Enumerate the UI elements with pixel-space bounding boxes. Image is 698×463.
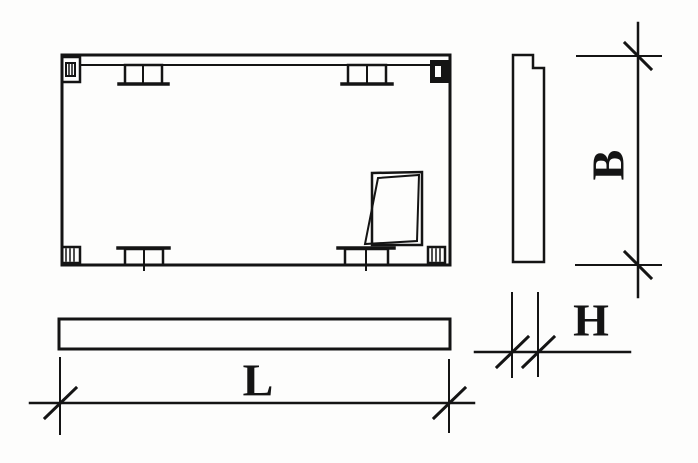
side-view <box>513 55 544 262</box>
plan-view <box>62 55 450 270</box>
dimension-label-L: L <box>243 354 274 407</box>
corner-plate-top-left <box>62 57 80 82</box>
elevation-view <box>59 319 450 349</box>
corner-plate-bottom-left <box>62 247 80 263</box>
corner-plate-top-right <box>431 61 450 82</box>
drawing-svg <box>0 0 698 463</box>
side-view-outline <box>513 55 544 262</box>
plan-opening <box>365 172 422 245</box>
lifting-anchor-bottom-right <box>338 248 394 270</box>
corner-plate-bottom-right <box>428 247 445 263</box>
lifting-anchor-top-left <box>119 65 168 84</box>
lifting-anchor-top-right <box>342 65 392 84</box>
technical-drawing-canvas: L B H <box>0 0 698 463</box>
elevation-outline <box>59 319 450 349</box>
plan-outline <box>62 55 450 265</box>
dimension-label-H: H <box>573 294 609 347</box>
lifting-anchor-bottom-left <box>118 248 169 270</box>
dimension-label-B: B <box>582 150 635 181</box>
